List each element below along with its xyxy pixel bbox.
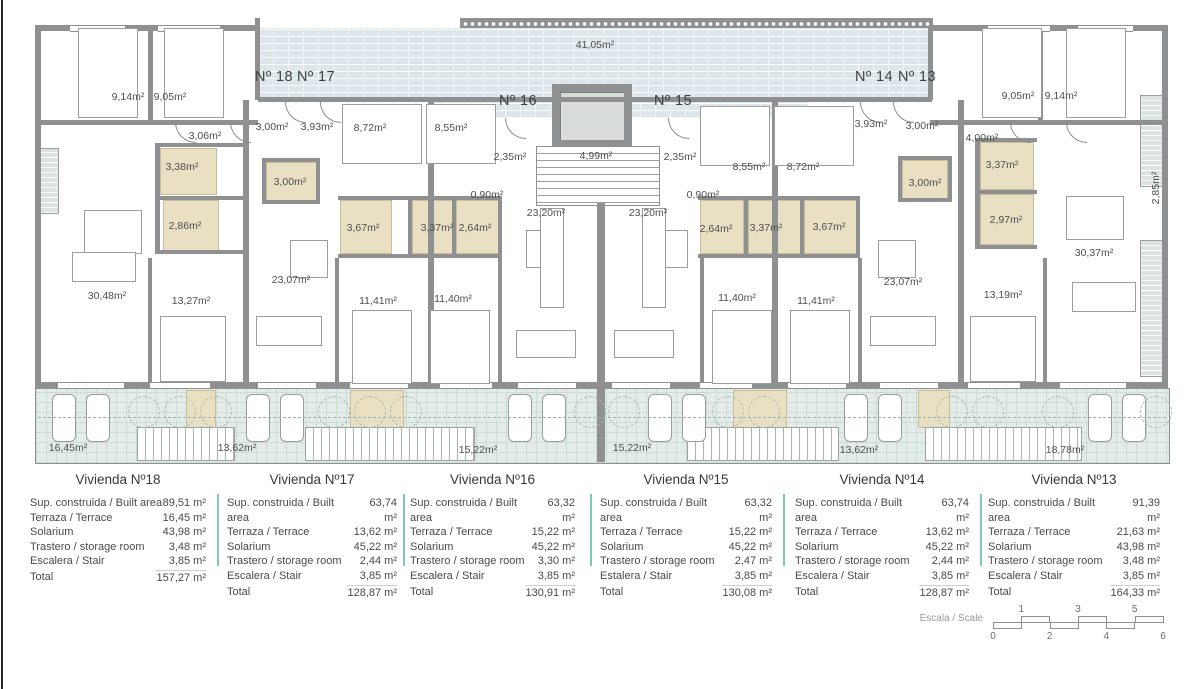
unit-number-label: Nº 17 — [297, 69, 335, 85]
area-label: 30,48m² — [88, 290, 127, 302]
area-label: 3,93m² — [855, 118, 888, 130]
unit-title: Vivienda Nº13 — [988, 472, 1160, 487]
bed — [970, 316, 1036, 382]
unit-title: Vivienda Nº16 — [410, 472, 575, 487]
scale-number: 2 — [1047, 631, 1053, 642]
parasol-circle — [1140, 396, 1172, 428]
spec-value: 45,22 m² — [354, 540, 397, 555]
table-separator — [217, 494, 219, 566]
bed — [790, 310, 850, 384]
scale-number: 4 — [1104, 631, 1110, 642]
door-arc — [1066, 122, 1087, 143]
sofa — [1072, 282, 1136, 312]
wall — [898, 198, 952, 202]
wall — [552, 84, 632, 92]
spec-value: 63,32 m² — [729, 496, 772, 525]
sun-lounger — [648, 394, 672, 442]
spec-value: 3,48 m² — [169, 540, 206, 555]
spec-label: Sup. construida / Built area — [795, 496, 926, 525]
spec-value: 3,85 m² — [538, 569, 575, 584]
spec-row: Escalera / Stair3,85 m² — [410, 569, 575, 584]
area-label: 0,90m² — [471, 189, 504, 201]
spec-label: Sup. construida / Built area — [30, 496, 162, 511]
scale-label: Escala / Scale — [893, 613, 983, 624]
area-label: 2,35m² — [494, 151, 527, 163]
area-label: 9,14m² — [112, 91, 145, 103]
area-label: 3,38m² — [166, 161, 199, 173]
area-label: 9,05m² — [154, 91, 187, 103]
area-label: 8,55m² — [733, 161, 766, 173]
spec-value: 91,39 m² — [1117, 496, 1160, 525]
spec-value: 43,98 m² — [1117, 540, 1160, 555]
wall — [262, 200, 320, 204]
unit-number-label: Nº 16 — [499, 93, 537, 109]
wall — [262, 158, 266, 204]
area-label: 41,05m² — [576, 39, 615, 51]
area-label: 4,00m² — [966, 132, 999, 144]
spec-row: Solarium45,22 m² — [410, 540, 575, 555]
area-label: 2,35m² — [664, 151, 697, 163]
bed — [774, 106, 854, 166]
spec-label: Total — [227, 585, 250, 601]
area-label: 9,14m² — [1045, 90, 1078, 102]
wall — [155, 143, 245, 147]
wall — [928, 18, 933, 100]
spec-label: Terraza / Terrace — [410, 525, 492, 540]
wall — [975, 190, 1037, 194]
area-label: 4,99m² — [580, 150, 613, 162]
scale-number: 0 — [990, 631, 996, 642]
door-arc — [668, 118, 689, 139]
unit-summary-table: Vivienda Nº16Sup. construida / Built are… — [410, 472, 575, 600]
spec-row: Trastero / storage room2,44 m² — [227, 554, 397, 569]
spec-value: 3,85 m² — [360, 569, 397, 584]
parasol-circle — [128, 396, 160, 428]
window — [1060, 382, 1126, 389]
spec-value: 2,44 m² — [932, 554, 969, 569]
sofa — [72, 252, 136, 282]
sun-lounger — [844, 394, 868, 442]
unit-summary-table: Vivienda Nº14Sup. construida / Built are… — [795, 472, 969, 600]
spec-value: 3,85 m² — [735, 569, 772, 584]
area-label: 11,41m² — [359, 295, 397, 307]
spec-label: Total — [988, 585, 1011, 601]
scale-segment — [1135, 616, 1164, 623]
terrace-guideline — [38, 417, 1166, 418]
bed — [352, 310, 412, 384]
area-label: 3,37m² — [421, 222, 454, 234]
dining-table — [290, 240, 328, 278]
spec-label: Solarium — [988, 540, 1031, 555]
floor-plan: 41,05m²Nº 18Nº 17Nº 16Nº 15Nº 14Nº 139,1… — [0, 0, 1200, 470]
spec-label: Terraza / Terrace — [600, 525, 682, 540]
area-label: 23,07m² — [272, 274, 311, 286]
wall — [552, 84, 560, 146]
spec-value: 164,33 m² — [1110, 585, 1160, 601]
wall — [898, 156, 952, 160]
wall — [262, 158, 320, 162]
spec-label: Total — [795, 585, 818, 601]
wall — [858, 258, 862, 386]
area-label: 13,27m² — [172, 295, 211, 307]
spec-row: Terraza / Terrace21,63 m² — [988, 525, 1160, 540]
area-label: 3,00m² — [906, 120, 939, 132]
unit-title: Vivienda Nº15 — [600, 472, 772, 487]
sofa — [870, 316, 936, 346]
unit-summary-table: Vivienda Nº15Sup. construida / Built are… — [600, 472, 772, 600]
window — [58, 382, 124, 389]
parasol-circle — [936, 396, 968, 428]
spec-value: 63,74 m² — [355, 496, 397, 525]
spec-label: Trastero / storage room — [795, 554, 910, 569]
area-label: 2,85m² — [1150, 172, 1162, 205]
wall — [1043, 258, 1047, 386]
spec-row: Trastero / storage room3,48 m² — [988, 554, 1160, 569]
wall — [624, 84, 632, 146]
spec-row: Solarium43,98 m² — [30, 525, 206, 540]
parasol-circle — [1042, 396, 1074, 428]
spec-row: Escalera / Stair3,85 m² — [988, 569, 1160, 584]
spec-value: 16,45 m² — [163, 511, 206, 526]
unit-summary-table: Vivienda Nº13Sup. construida / Built are… — [988, 472, 1160, 600]
spec-label: Sup. construida / Built area — [227, 496, 355, 525]
wall — [498, 256, 502, 386]
bed — [160, 316, 226, 382]
wall — [930, 120, 1168, 125]
wall — [35, 25, 258, 31]
bed — [426, 104, 496, 164]
area-label: 13,19m² — [984, 289, 1023, 301]
spec-row: Solarium45,22 m² — [795, 540, 969, 555]
bed — [164, 28, 224, 118]
spec-value: 3,85 m² — [932, 569, 969, 584]
bed — [1066, 28, 1126, 118]
spec-value: 130,91 m² — [525, 585, 575, 601]
kitchen-counter — [540, 208, 564, 308]
spec-label: Solarium — [227, 540, 270, 555]
wall — [700, 256, 704, 386]
wall — [856, 196, 860, 258]
sun-lounger — [878, 394, 902, 442]
spec-label: Sup. construida / Built area — [410, 496, 534, 525]
sofa — [256, 316, 322, 346]
wall — [316, 158, 320, 204]
parasol-circle — [318, 396, 350, 428]
spec-row: Estalera / Stair3,85 m² — [600, 569, 772, 584]
unit-title: Vivienda Nº14 — [795, 472, 969, 487]
spec-row: Escalera / Stair3,85 m² — [30, 554, 206, 569]
spec-label: Terraza / Terrace — [30, 511, 112, 526]
spec-label: Terraza / Terrace — [795, 525, 877, 540]
spec-value: 2,47 m² — [735, 554, 772, 569]
unit-title: Vivienda Nº17 — [227, 472, 397, 487]
wall — [975, 245, 1037, 249]
spec-value: 63,74 m² — [926, 496, 969, 525]
wall — [698, 196, 860, 200]
sun-lounger — [542, 394, 566, 442]
sun-lounger — [682, 394, 706, 442]
sun-lounger — [52, 394, 76, 442]
spec-label: Terraza / Terrace — [227, 525, 309, 540]
wall — [35, 25, 41, 388]
wall — [948, 156, 952, 202]
spec-row: Sup. construida / Built area63,32 m² — [410, 496, 575, 525]
area-label: 9,05m² — [1002, 90, 1035, 102]
spec-label: Sup. construida / Built area — [988, 496, 1117, 525]
area-label: 11,40m² — [718, 292, 756, 304]
scale-segment — [993, 622, 1022, 629]
spec-value: 2,44 m² — [360, 554, 397, 569]
scale-segment — [1078, 616, 1107, 623]
unit-title: Vivienda Nº18 — [30, 472, 206, 487]
spec-row: Solarium43,98 m² — [988, 540, 1160, 555]
spec-row: Trastero / storage room2,47 m² — [600, 554, 772, 569]
spec-label: Sup. construida / Built area — [600, 496, 729, 525]
floorplan-page: { "plan": { "labels": [ {"t":"41,05m²","… — [0, 0, 1200, 689]
sun-lounger — [1088, 394, 1112, 442]
window — [258, 382, 316, 389]
area-label: 8,55m² — [435, 122, 468, 134]
spec-row: Solarium45,22 m² — [600, 540, 772, 555]
area-label: 3,00m² — [274, 176, 307, 188]
spec-label: Trastero / storage room — [227, 554, 342, 569]
spec-row: Sup. construida / Built area91,39 m² — [988, 496, 1160, 525]
unit-summary-table: Vivienda Nº17Sup. construida / Built are… — [227, 472, 397, 600]
bed — [78, 28, 138, 118]
spec-value: 45,22 m² — [926, 540, 969, 555]
window — [968, 382, 1020, 389]
scale-number: 6 — [1160, 631, 1166, 642]
scale-bar: 1350246 — [993, 604, 1165, 642]
parasol-circle — [200, 396, 232, 428]
spec-label: Escalera / Stair — [227, 569, 302, 584]
area-label: 15,22m² — [613, 442, 652, 454]
window — [880, 382, 938, 389]
area-label: 23,20m² — [527, 207, 566, 219]
area-label: 16,45m² — [49, 442, 88, 454]
door-arc — [505, 118, 526, 139]
scale-number: 1 — [1019, 604, 1025, 615]
spec-label: Total — [600, 585, 623, 601]
area-label: 8,72m² — [787, 161, 820, 173]
area-label: 3,67m² — [813, 221, 846, 233]
unit-number-label: Nº 13 — [898, 69, 936, 85]
unit-summary-table: Vivienda Nº18Sup. construida / Built are… — [30, 472, 206, 586]
bed — [982, 28, 1042, 118]
spec-label: Terraza / Terrace — [988, 525, 1070, 540]
wall — [408, 196, 412, 258]
scale-segment — [1021, 616, 1050, 623]
sofa — [516, 330, 576, 358]
spec-row: Total128,87 m² — [227, 585, 397, 601]
spec-row: Total128,87 m² — [795, 585, 969, 601]
spec-row: Escalera / Stair3,85 m² — [795, 569, 969, 584]
area-label: 23,20m² — [629, 207, 668, 219]
terrace-stairs — [687, 427, 839, 461]
spec-row: Total157,27 m² — [30, 570, 206, 586]
area-label: 13,62m² — [218, 442, 257, 454]
parasol-circle — [574, 396, 606, 428]
spec-value: 128,87 m² — [919, 585, 969, 601]
sun-lounger — [280, 394, 304, 442]
scale-number: 3 — [1075, 604, 1081, 615]
area-label: 18,78m² — [1046, 444, 1085, 456]
table-separator — [980, 494, 982, 566]
sun-lounger — [508, 394, 532, 442]
spec-value: 157,27 m² — [156, 570, 206, 586]
unit-number-label: Nº 14 — [855, 69, 893, 85]
spec-row: Trastero / storage room3,48 m² — [30, 540, 206, 555]
spec-row: Terraza / Terrace13,62 m² — [227, 525, 397, 540]
parasol-circle — [390, 396, 422, 428]
scale-number: 5 — [1132, 604, 1138, 615]
wall — [255, 18, 260, 100]
spec-row: Escalera / Stair3,85 m² — [227, 569, 397, 584]
spec-label: Escalera / Stair — [988, 569, 1063, 584]
door-arc — [320, 102, 341, 123]
spec-label: Escalera / Stair — [30, 554, 105, 569]
spec-label: Solarium — [30, 525, 73, 540]
wall — [335, 258, 339, 386]
spec-row: Total130,08 m² — [600, 585, 772, 601]
window — [150, 382, 210, 389]
spec-row: Sup. construida / Built area63,32 m² — [600, 496, 772, 525]
area-label: 3,67m² — [347, 222, 380, 234]
scale-segment — [1106, 622, 1135, 629]
area-label: 3,06m² — [189, 130, 222, 142]
spec-row: Sup. construida / Built area89,51 m² — [30, 496, 206, 511]
area-label: 15,22m² — [459, 444, 498, 456]
bed — [430, 310, 490, 384]
spec-row: Terraza / Terrace15,22 m² — [410, 525, 575, 540]
area-label: 2,64m² — [459, 222, 492, 234]
wall — [552, 140, 632, 146]
dining-table — [878, 240, 916, 278]
spec-value: 3,85 m² — [1123, 569, 1160, 584]
spec-value: 43,98 m² — [163, 525, 206, 540]
parasol-circle — [748, 396, 780, 428]
wall — [148, 258, 152, 386]
table-separator — [590, 494, 592, 566]
spec-row: Trastero / storage room3,30 m² — [410, 554, 575, 569]
area-label: 3,00m² — [256, 121, 289, 133]
wall — [597, 203, 605, 388]
kitchen-counter — [642, 208, 666, 308]
spec-row: Terraza / Terrace15,22 m² — [600, 525, 772, 540]
wall — [155, 196, 245, 200]
wall — [338, 254, 502, 258]
spec-row: Solarium45,22 m² — [227, 540, 397, 555]
scale-segment — [1050, 622, 1079, 629]
bed — [342, 104, 422, 164]
area-label: 3,93m² — [301, 121, 334, 133]
spec-row: Sup. construida / Built area63,74 m² — [795, 496, 969, 525]
area-label: 8,72m² — [354, 122, 387, 134]
parasol-circle — [712, 396, 744, 428]
area-label: 13,62m² — [840, 444, 879, 456]
wall — [258, 97, 932, 102]
railing-dots — [460, 18, 930, 28]
parasol-circle — [972, 396, 1004, 428]
spec-value: 89,51 m² — [163, 496, 206, 511]
spec-label: Trastero / storage room — [410, 554, 525, 569]
spec-value: 130,08 m² — [722, 585, 772, 601]
wall — [498, 196, 502, 256]
area-label: 3,37m² — [750, 222, 783, 234]
wall — [800, 196, 804, 258]
spec-label: Escalera / Stair — [410, 569, 485, 584]
spec-value: 3,30 m² — [538, 554, 575, 569]
spec-value: 15,22 m² — [729, 525, 772, 540]
spec-value: 63,32 m² — [534, 496, 575, 525]
wall — [1162, 25, 1168, 388]
wall — [155, 250, 245, 254]
area-label: 3,00m² — [909, 177, 942, 189]
sun-lounger — [246, 394, 270, 442]
spec-label: Solarium — [410, 540, 453, 555]
wall — [148, 25, 153, 120]
spec-label: Solarium — [795, 540, 838, 555]
dining-table — [84, 210, 142, 254]
wall — [698, 254, 860, 258]
wall — [958, 100, 964, 388]
spec-label: Trastero / storage room — [988, 554, 1103, 569]
sofa — [614, 330, 674, 358]
spec-value: 3,85 m² — [169, 554, 206, 569]
spec-row: Terraza / Terrace16,45 m² — [30, 511, 206, 526]
area-label: 0,90m² — [687, 189, 720, 201]
spec-row: Sup. construida / Built area63,74 m² — [227, 496, 397, 525]
spec-row: Total130,91 m² — [410, 585, 575, 601]
area-label: 11,41m² — [797, 295, 835, 307]
area-label: 23,07m² — [884, 276, 923, 288]
area-label: 30,37m² — [1075, 247, 1114, 259]
bed — [700, 106, 770, 166]
spec-value: 45,22 m² — [729, 540, 772, 555]
bed — [712, 310, 772, 384]
door-arc — [230, 122, 251, 143]
terrace-stairs — [305, 427, 475, 461]
spec-row: Total164,33 m² — [988, 585, 1160, 601]
spec-value: 15,22 m² — [532, 525, 575, 540]
area-label: 3,37m² — [986, 159, 1019, 171]
area-label: 11,40m² — [434, 293, 472, 305]
window — [612, 382, 670, 389]
spec-label: Trastero / storage room — [30, 540, 145, 555]
spec-value: 13,62 m² — [926, 525, 969, 540]
spec-label: Total — [30, 570, 53, 586]
spec-label: Total — [410, 585, 433, 601]
spec-value: 21,63 m² — [1117, 525, 1160, 540]
table-separator — [783, 494, 785, 566]
spec-value: 3,48 m² — [1123, 554, 1160, 569]
spec-label: Solarium — [600, 540, 643, 555]
area-label: 2,86m² — [169, 220, 202, 232]
spec-value: 128,87 m² — [347, 585, 397, 601]
unit-number-label: Nº 18 — [255, 69, 293, 85]
unit-number-label: Nº 15 — [654, 93, 692, 109]
dining-table — [1066, 196, 1124, 240]
spec-value: 45,22 m² — [532, 540, 575, 555]
spec-label: Trastero / storage room — [600, 554, 715, 569]
area-label: 2,64m² — [700, 223, 733, 235]
spec-row: Trastero / storage room2,44 m² — [795, 554, 969, 569]
spec-row: Terraza / Terrace13,62 m² — [795, 525, 969, 540]
spec-label: Escalera / Stair — [795, 569, 870, 584]
table-separator — [403, 494, 405, 566]
parasol-circle — [164, 396, 196, 428]
area-label: 2,97m² — [990, 214, 1023, 226]
